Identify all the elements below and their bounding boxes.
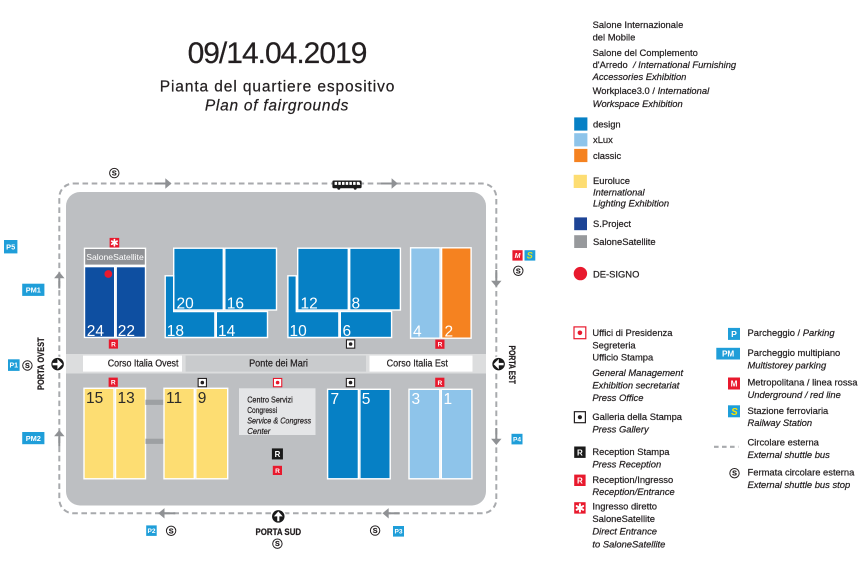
svg-text:Stazione ferroviaria: Stazione ferroviaria (748, 405, 830, 416)
svg-text:classic: classic (593, 150, 621, 161)
svg-text:P3: P3 (394, 529, 402, 536)
svg-text:Press Office: Press Office (592, 392, 643, 403)
svg-text:SaloneSatellite: SaloneSatellite (86, 252, 144, 262)
svg-text:24: 24 (87, 323, 105, 340)
svg-text:del Mobile: del Mobile (593, 32, 636, 43)
svg-text:Reception Stampa: Reception Stampa (592, 446, 670, 457)
svg-text:Parcheggio multipiano: Parcheggio multipiano (748, 347, 841, 358)
svg-text:Workplace3.0 / International: Workplace3.0 / International (593, 85, 710, 96)
svg-text:SaloneSatellite: SaloneSatellite (593, 236, 656, 247)
svg-text:13: 13 (118, 390, 135, 407)
svg-text:design: design (593, 118, 621, 129)
svg-text:Metropolitana / linea rossa: Metropolitana / linea rossa (748, 377, 859, 388)
svg-text:3: 3 (412, 391, 421, 408)
svg-text:M: M (731, 380, 738, 389)
svg-text:P4: P4 (513, 437, 521, 444)
svg-text:Circolare esterna: Circolare esterna (748, 437, 820, 448)
svg-text:Accessories Exhibition: Accessories Exhibition (592, 71, 687, 82)
svg-text:09/14.04.2019: 09/14.04.2019 (188, 37, 367, 70)
svg-text:Parcheggio / Parking: Parcheggio / Parking (748, 327, 836, 338)
svg-text:Reception/Ingresso: Reception/Ingresso (592, 474, 673, 485)
svg-text:S: S (732, 469, 737, 478)
svg-text:Euroluce: Euroluce (593, 175, 630, 186)
svg-text:P: P (731, 329, 737, 339)
svg-text:PM: PM (722, 350, 734, 359)
svg-text:to SaloneSatellite: to SaloneSatellite (592, 539, 665, 550)
svg-text:16: 16 (227, 295, 244, 312)
svg-text:General Management: General Management (592, 367, 683, 378)
svg-text:Corso Italia Ovest: Corso Italia Ovest (108, 358, 179, 369)
svg-text:5: 5 (362, 391, 371, 408)
svg-text:Railway Station: Railway Station (748, 417, 813, 428)
svg-text:22: 22 (118, 323, 135, 340)
svg-text:14: 14 (218, 323, 236, 340)
svg-text:d'Arredo / International Furn: d'Arredo / International Furnishing (593, 59, 737, 70)
svg-text:Ponte dei Mari: Ponte dei Mari (249, 358, 308, 369)
svg-text:R: R (577, 448, 583, 457)
svg-text:Salone Internazionale: Salone Internazionale (593, 19, 684, 30)
svg-text:International: International (593, 187, 646, 198)
svg-text:R: R (577, 476, 583, 485)
svg-text:P1: P1 (10, 363, 19, 370)
svg-text:12: 12 (301, 295, 318, 312)
svg-text:Congressi: Congressi (247, 405, 277, 415)
svg-text:Press Gallery: Press Gallery (592, 423, 650, 434)
svg-text:18: 18 (167, 323, 184, 340)
svg-text:PORTA OVEST: PORTA OVEST (36, 337, 46, 390)
svg-text:2: 2 (445, 323, 454, 340)
svg-text:Multistorey parking: Multistorey parking (748, 359, 827, 370)
svg-text:Reception/Entrance: Reception/Entrance (592, 486, 674, 497)
svg-text:Pianta del quartiere espositiv: Pianta del quartiere espositivo (160, 79, 396, 96)
svg-text:Galleria della Stampa: Galleria della Stampa (592, 411, 682, 422)
svg-text:External shuttle bus: External shuttle bus (748, 449, 831, 460)
svg-text:P2: P2 (147, 528, 155, 535)
svg-text:8: 8 (352, 295, 361, 312)
svg-text:Press Reception: Press Reception (592, 458, 661, 469)
svg-text:PM1: PM1 (26, 286, 41, 295)
svg-text:4: 4 (413, 323, 422, 340)
svg-text:Uffici di Presidenza: Uffici di Presidenza (592, 327, 673, 338)
svg-text:Ingresso diretto: Ingresso diretto (592, 501, 657, 512)
svg-text:20: 20 (177, 295, 195, 312)
svg-text:Centro Servizi: Centro Servizi (247, 394, 293, 404)
svg-text:DE-SIGNO: DE-SIGNO (593, 269, 639, 280)
svg-text:Service & Congress: Service & Congress (247, 415, 312, 425)
svg-text:SaloneSatellite: SaloneSatellite (592, 513, 655, 524)
svg-text:Underground / red line: Underground / red line (748, 389, 841, 400)
svg-text:7: 7 (331, 391, 340, 408)
svg-text:Workspace Exhibition: Workspace Exhibition (593, 98, 683, 109)
svg-text:M: M (515, 253, 521, 260)
svg-text:xLux: xLux (593, 134, 613, 145)
svg-text:11: 11 (166, 390, 182, 407)
svg-text:Direct Entrance: Direct Entrance (592, 526, 657, 537)
svg-text:Corso Italia Est: Corso Italia Est (387, 358, 449, 369)
svg-text:P5: P5 (6, 243, 15, 252)
svg-text:Salone del Complemento: Salone del Complemento (593, 47, 698, 58)
svg-text:PM2: PM2 (26, 434, 41, 443)
svg-text:Center: Center (247, 426, 271, 436)
svg-text:Plan of fairgrounds: Plan of fairgrounds (205, 98, 349, 115)
svg-text:Lighting Exhibition: Lighting Exhibition (593, 198, 669, 209)
svg-text:S.Project: S.Project (593, 218, 631, 229)
svg-text:S: S (527, 251, 533, 261)
svg-text:Exhibition secretariat: Exhibition secretariat (592, 379, 679, 390)
svg-text:Segreteria: Segreteria (592, 340, 636, 351)
svg-text:Ufficio Stampa: Ufficio Stampa (592, 351, 654, 362)
svg-text:15: 15 (86, 390, 103, 407)
svg-text:External shuttle bus stop: External shuttle bus stop (748, 479, 851, 490)
svg-text:S: S (731, 407, 738, 418)
svg-text:PORTA EST: PORTA EST (507, 346, 517, 385)
svg-text:10: 10 (290, 323, 308, 340)
svg-text:6: 6 (343, 323, 352, 340)
svg-text:1: 1 (444, 391, 453, 408)
svg-text:9: 9 (198, 390, 207, 407)
svg-text:PORTA SUD: PORTA SUD (256, 527, 302, 537)
svg-text:Fermata circolare esterna: Fermata circolare esterna (748, 467, 856, 478)
